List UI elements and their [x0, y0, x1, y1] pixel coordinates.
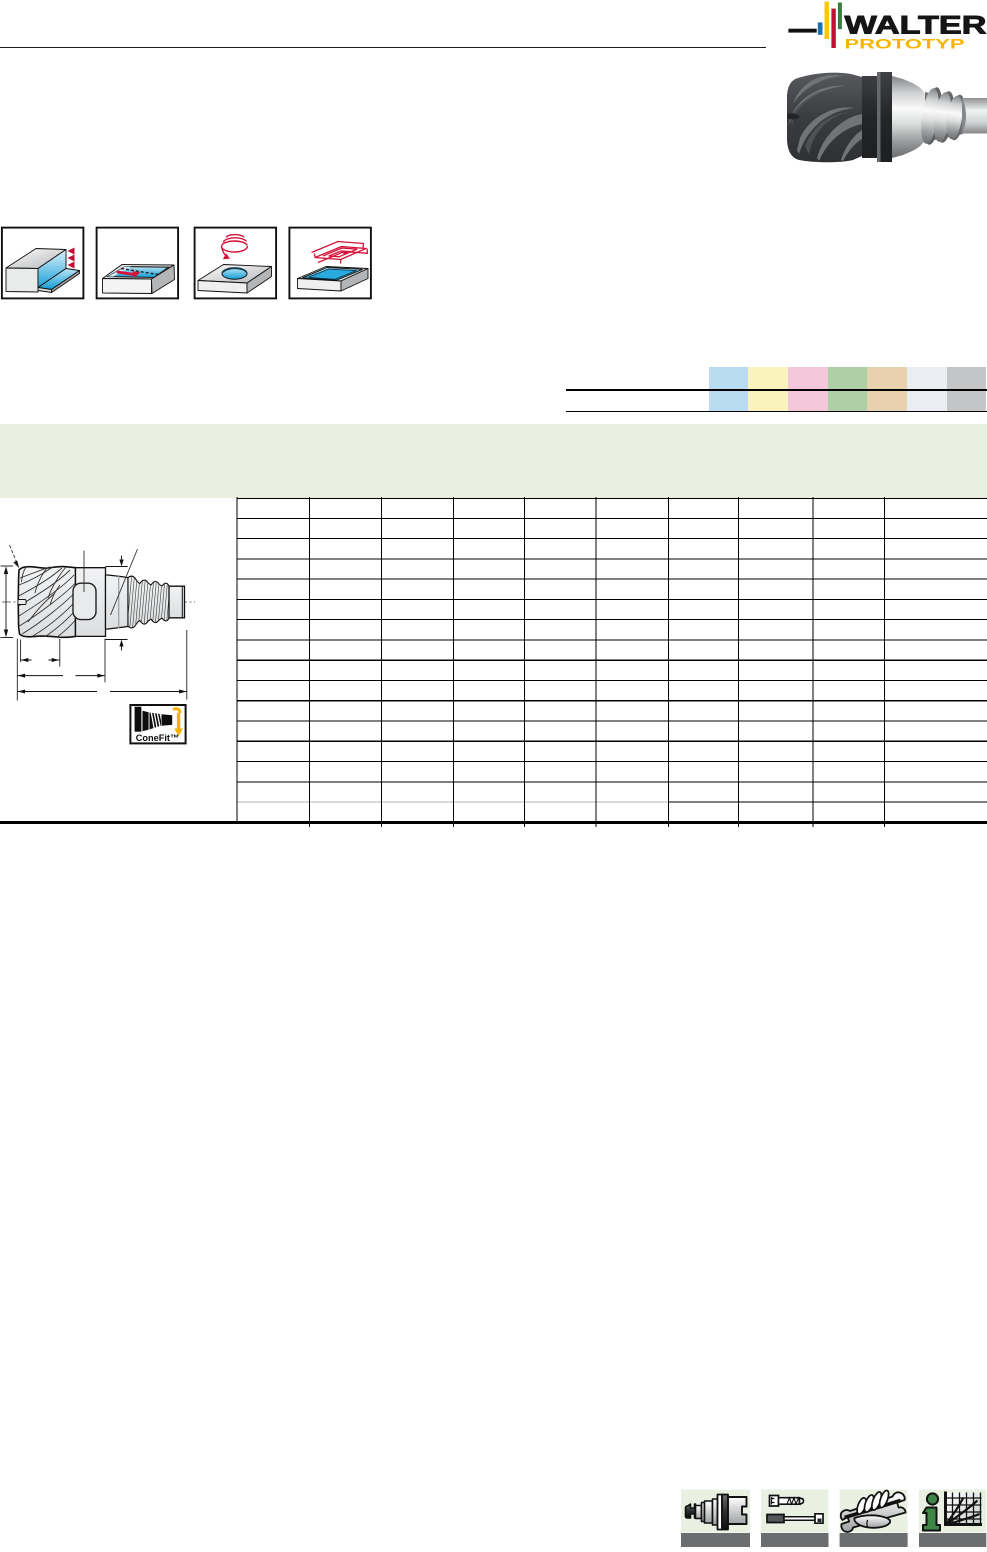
svg-text:WALTER: WALTER	[845, 12, 987, 40]
svg-text:ConeFit™: ConeFit™	[136, 733, 179, 743]
svg-text:PROTOTYP: PROTOTYP	[845, 37, 965, 52]
